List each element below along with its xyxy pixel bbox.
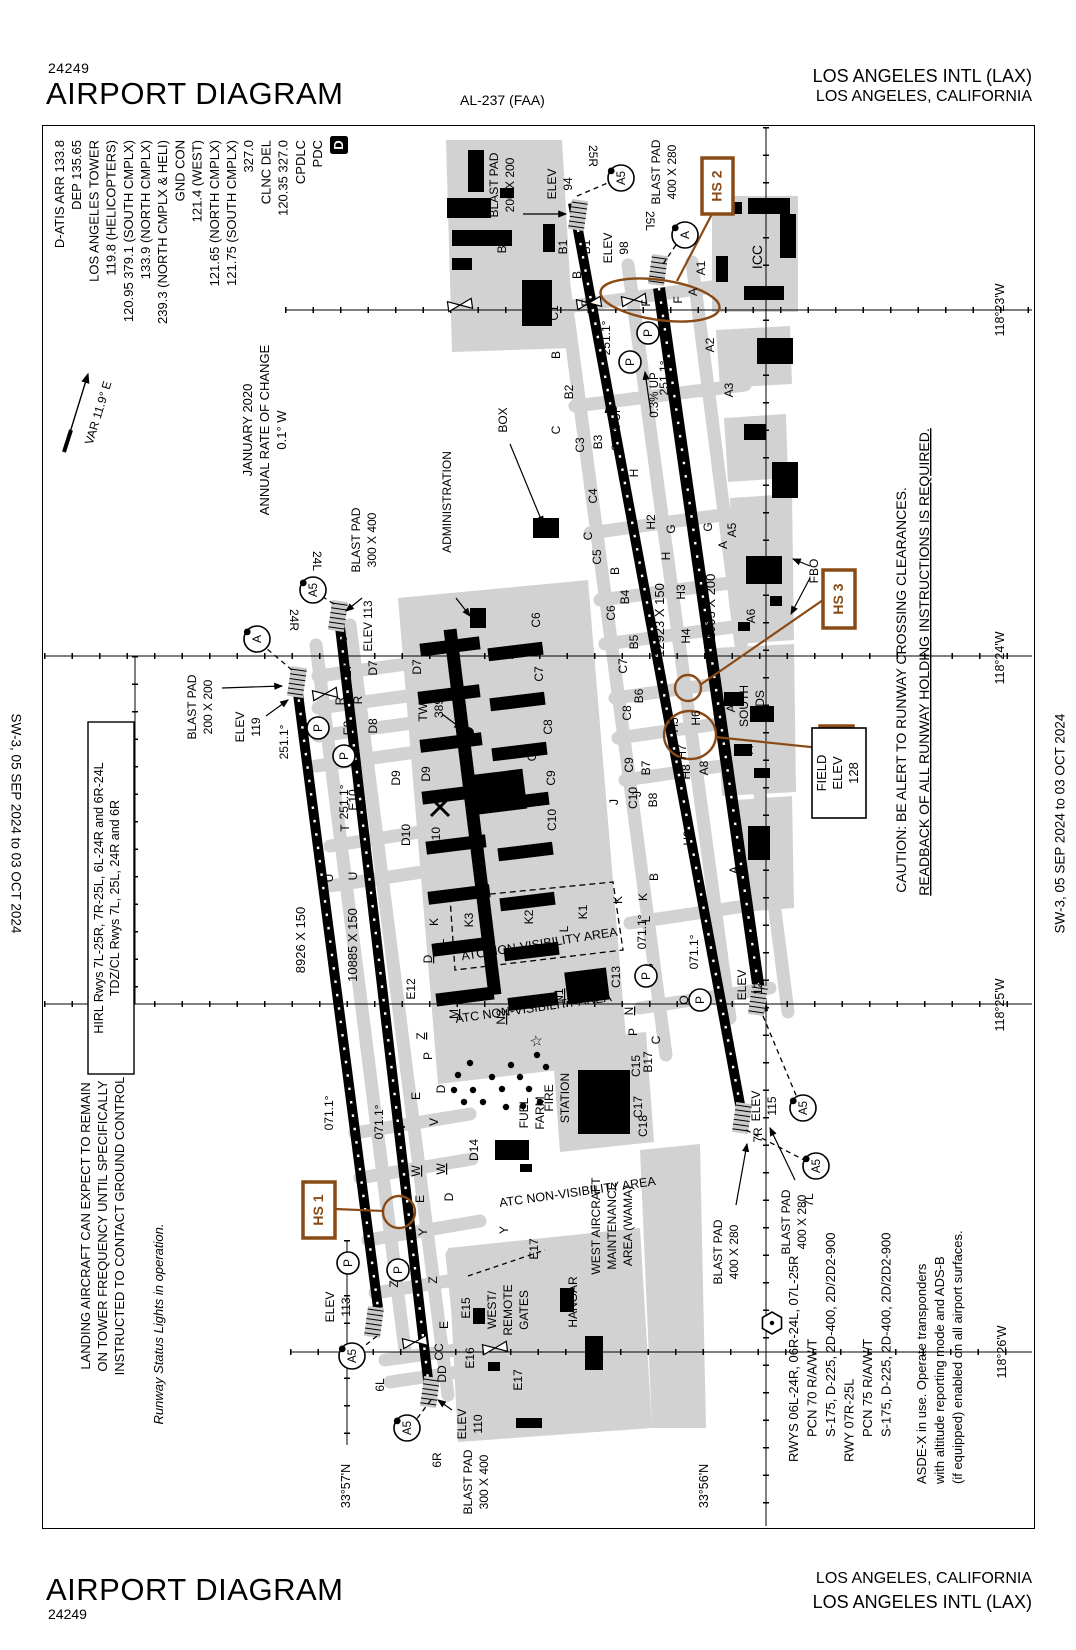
taxiway-label: A: [742, 746, 756, 754]
taxiway-label: B1: [556, 239, 570, 254]
taxiway-label: D7: [410, 659, 424, 675]
page-title-footer: AIRPORT DIAGRAM: [46, 1572, 343, 1608]
comm-line: D-ATIS ARR 133.8: [52, 140, 67, 248]
leader-arrow: [736, 1144, 747, 1205]
caution-note: CAUTION: BE ALERT TO RUNWAY CROSSING CLE…: [893, 487, 909, 893]
taxiway-label: K2: [522, 909, 536, 924]
taxiway-label: D9: [389, 770, 403, 786]
taxiway-label: E17: [511, 1369, 525, 1391]
taxiway-label: BLAST PAD400 X 280: [649, 139, 679, 204]
taxiway-label: N1: [552, 988, 566, 1004]
taxiway-label: HANGAR: [566, 1276, 580, 1328]
circled-letter: P: [641, 329, 655, 337]
taxiway-label: 6L: [373, 1378, 387, 1392]
dashed-leader: [362, 1336, 377, 1348]
building: [495, 1140, 529, 1160]
taxiway-label: A8: [697, 760, 711, 775]
taxiway-label: H6: [689, 710, 703, 726]
taxiway-label: B: [570, 271, 584, 279]
building: [780, 214, 796, 258]
building: [770, 596, 782, 606]
fuel-tank-dot: [467, 1060, 473, 1066]
alsf-dot: [608, 167, 615, 174]
alsf-dot: [672, 224, 679, 231]
taxiway-label: C: [581, 531, 595, 540]
hotspot-box-label: HS 2: [709, 170, 725, 201]
taxiway-label: V: [427, 1118, 441, 1126]
taxiway-label: C17: [631, 1096, 645, 1118]
leader-arrow: [438, 1400, 452, 1410]
taxiway-label: B1: [495, 238, 509, 253]
taxiway-label: D: [442, 1192, 456, 1201]
comm-line: 121.4 (WEST): [190, 140, 205, 222]
circled-letter: P: [337, 752, 351, 760]
leader-arrow: [510, 444, 543, 524]
fuel-tank-dot: [455, 1072, 461, 1078]
taxiway-label: C8: [541, 719, 555, 735]
circled-letter: A5: [347, 1349, 359, 1363]
comm-line: PDC: [310, 140, 325, 167]
taxiway-label: BLAST PAD400 X 280: [711, 1219, 741, 1284]
building: [516, 1418, 542, 1428]
fuel-tank-dot: [499, 1086, 505, 1092]
taxiway-label: F: [639, 299, 653, 306]
comm-line: 121.65 (NORTH CMPLX): [207, 140, 222, 286]
taxiway-label: U: [346, 872, 360, 881]
comm-line: 120.95 379.1 (SOUTH CMPLX): [121, 140, 136, 322]
taxiway-label: FBO: [807, 559, 821, 584]
taxiway-label: 0.3% UP: [649, 372, 661, 418]
taxiway-label: B6: [632, 688, 646, 703]
building: [748, 198, 790, 214]
building: [470, 608, 486, 628]
taxiway-label: K: [427, 918, 441, 926]
taxiway-label: C9: [544, 770, 558, 786]
leader-arrow: [770, 1128, 795, 1180]
building: [452, 258, 472, 270]
taxiway-label: C1: [547, 305, 561, 321]
taxiway-label: C1: [522, 304, 536, 320]
airport-diagram-canvas: 118°23'W118°24'W118°25'W118°26'W33°56'N3…: [0, 0, 1076, 1650]
taxiway-label: K3: [462, 912, 476, 927]
taxiway-label: P: [626, 1028, 640, 1036]
building: [754, 768, 770, 778]
taxiway-label: B2: [562, 384, 576, 399]
building: [716, 256, 728, 282]
comm-line: LOS ANGELES TOWER: [86, 140, 101, 282]
taxiway-label: 071.1°: [372, 1104, 386, 1139]
fuel-tank-dot: [526, 1086, 532, 1092]
taxiway-label: 8926 X 150: [293, 907, 308, 974]
taxiway-label: C8: [620, 705, 634, 721]
circled-letter: A5: [308, 583, 320, 597]
building: [447, 198, 491, 218]
taxiway-label: 7R: [751, 1127, 765, 1143]
asdex-note: with altitude reporting mode and ADS-B: [932, 1256, 947, 1485]
taxiway-label: E: [437, 1321, 451, 1329]
taxiway-label: E10: [346, 789, 360, 811]
dashed-leader: [577, 182, 610, 196]
building: [468, 769, 527, 815]
fuel-tank-dot: [543, 1064, 549, 1070]
taxiway-label: K1: [576, 904, 590, 919]
taxiway-label: A1: [694, 260, 708, 275]
rwsl-note: Runway Status Lights in operation.: [151, 1224, 166, 1425]
taxiway-label: 25L: [643, 211, 657, 231]
taxiway-label: 071.1°: [322, 1095, 336, 1130]
alsf-dot: [244, 628, 251, 635]
building: [468, 150, 484, 192]
circled-letter: A5: [402, 1421, 414, 1435]
comm-line: CPDLC: [293, 140, 308, 184]
taxiway-label: G: [701, 522, 715, 531]
readback-note: READBACK OF ALL RUNWAY HOLDING INSTRUCTI…: [916, 428, 932, 896]
taxiway-label: D7: [366, 660, 380, 676]
comm-line: 239.3 (NORTH CMPLX & HELI): [155, 140, 170, 324]
taxiway-label: Y: [416, 1228, 430, 1236]
comm-line: CLNC DEL: [258, 140, 273, 204]
comm-line: 327.0: [241, 140, 256, 173]
taxiway-label: ELEV 113: [363, 601, 375, 652]
taxiway-label: C7: [616, 658, 630, 674]
taxiway-label: W: [434, 1163, 448, 1175]
taxiway-label: B8: [646, 792, 660, 807]
taxiway-label: C13: [609, 966, 623, 988]
circled-letter: A: [250, 635, 264, 643]
circled-letter: A5: [811, 1159, 823, 1173]
taxiway-label: B17: [641, 1051, 655, 1073]
comm-line: 120.35 327.0: [276, 140, 291, 216]
taxiway-label: D: [421, 954, 435, 963]
taxiway-label: B4: [618, 589, 632, 604]
asdex-note: (if equipped) enabled on all airport sur…: [950, 1230, 965, 1484]
annual-change-note: JANUARY 2020ANNUAL RATE OF CHANGE0.1° W: [240, 344, 289, 515]
taxiway-label: 24R: [287, 609, 301, 631]
taxiway-label: ELEV119: [233, 712, 263, 743]
building: [585, 1336, 603, 1370]
taxiway-label: B: [608, 567, 622, 575]
taxiway-label: A2: [703, 337, 717, 352]
building: [533, 518, 559, 538]
taxiway-label: C: [649, 1035, 663, 1044]
taxiway-label: Z: [426, 1276, 440, 1283]
taxiway-label: BLAST PAD300 X 400: [349, 507, 379, 572]
taxiway-label: 10885 X 150: [345, 908, 360, 982]
taxiway-label: N: [622, 1007, 636, 1016]
taxiway-label: H: [659, 552, 673, 561]
taxiway-label: ADMINISTRATION: [440, 451, 454, 553]
fuel-tank-dot: [534, 1052, 540, 1058]
taxiway-label: B7: [639, 760, 653, 775]
taxiway-label: D14: [467, 1139, 481, 1161]
alsf-dot: [300, 579, 307, 586]
taxiway-label: CC: [432, 1343, 446, 1361]
fuel-tank-dot: [480, 1099, 486, 1105]
blast-pad: [287, 666, 307, 698]
blast-pad: [364, 1306, 384, 1338]
dashed-leader: [663, 242, 678, 264]
taxiway-label: K: [636, 893, 650, 901]
building: [744, 286, 784, 300]
building: [488, 1362, 500, 1371]
building: [744, 424, 766, 440]
taxiway-label: R: [351, 695, 365, 704]
taxiway-label: Z: [414, 1032, 428, 1039]
circled-letter: P: [311, 724, 325, 732]
pcn-note: PCN 75 R/A/W/T: [860, 1339, 875, 1437]
taxiway-label: C5: [590, 549, 604, 565]
tower-dot: [462, 727, 474, 739]
taxiway-label: V: [394, 1123, 408, 1131]
taxiway-label: 0.3% UP: [611, 405, 623, 451]
taxiway-label: T: [338, 824, 352, 832]
taxiway-label: H5: [667, 717, 681, 733]
taxiway-label: 25R: [586, 145, 600, 167]
alsf-dot: [394, 1417, 401, 1424]
airport-city-footer: LOS ANGELES, CALIFORNIA: [816, 1570, 1032, 1588]
taxiway-label: M: [447, 1009, 461, 1019]
taxiway-label: H4: [679, 628, 693, 644]
taxiway-label: A: [686, 288, 700, 296]
taxiway-label: K: [611, 896, 625, 904]
taxiway-label: E12: [404, 978, 418, 1000]
taxiway-label: G: [664, 524, 678, 533]
comm-line: 119.8 (HELICOPTERS): [104, 140, 119, 276]
magnetic-variation-label: VAR 11.9° E: [82, 379, 115, 446]
taxiway-label: A5: [725, 522, 739, 537]
taxiway-label: H7: [675, 744, 689, 760]
taxiway-label: BLAST PAD300 X 400: [461, 1449, 491, 1514]
graticule-label: 118°25'W: [993, 978, 1007, 1031]
taxiway-label: DD: [435, 1365, 449, 1383]
taxiway-label: E8: [341, 720, 355, 735]
taxiway-label: E: [409, 1092, 423, 1100]
graticule-label: 118°26'W: [995, 1325, 1009, 1378]
taxiway-label: A6: [744, 608, 758, 623]
taxiway-label: 24L: [310, 551, 324, 571]
pcn-note: S-175, D-225, 2D-400, 2D/2D2-900: [879, 1232, 894, 1437]
taxiway-label: BLAST PAD200 X 200: [185, 674, 215, 739]
taxiway-label: C6: [529, 612, 543, 628]
graticule-label: 118°23'W: [993, 283, 1007, 336]
taxiway-label: L: [433, 938, 447, 945]
comm-line: DEP 135.65: [69, 140, 84, 210]
building: [520, 1164, 532, 1172]
taxiway-label: L: [639, 915, 653, 922]
pcn-note: RWYS 06L-24R, 06R-24L, 07L-25R: [786, 1256, 801, 1462]
taxiway-label: C4: [586, 488, 600, 504]
taxiway-label: B3: [591, 434, 605, 449]
fuel-tank-dot: [489, 1074, 495, 1080]
taxiway-label: H3: [674, 584, 688, 600]
taxiway-label: C: [549, 425, 563, 434]
taxiway-label: B1: [579, 239, 593, 254]
taxiway-label: F: [579, 299, 593, 306]
comm-line: GND CON: [172, 140, 187, 201]
taxiway-label: E17: [527, 1238, 541, 1260]
vor-dot: [770, 1321, 774, 1325]
taxiway-label: C7: [532, 666, 546, 682]
airport-name-footer: LOS ANGELES INTL (LAX): [813, 1592, 1032, 1613]
circled-letter: P: [623, 358, 637, 366]
graticule-label: 33°56'N: [697, 1464, 711, 1508]
dashed-leader: [266, 648, 292, 670]
circled-letter: P: [693, 996, 707, 1004]
leader-arrow: [346, 598, 362, 611]
pcn-note: PCN 70 R/A/W/T: [805, 1339, 820, 1437]
fuel-tank-dot: [517, 1074, 523, 1080]
taxiway-label: R: [333, 696, 347, 705]
taxiway-label: A: [727, 866, 741, 874]
dashed-leader: [763, 1016, 798, 1100]
taxiway-label: D9: [419, 766, 433, 782]
leader-arrow: [266, 700, 288, 716]
taxiway-label: ELEV115: [749, 1091, 779, 1122]
taxiway-label: B: [647, 873, 661, 881]
fuel-tank-dot: [451, 1087, 457, 1093]
taxiway-label: D10: [399, 824, 413, 846]
fuel-tank-dot: [461, 1099, 467, 1105]
taxiway-label: H: [627, 469, 641, 478]
taxiway-label: P: [421, 1052, 435, 1060]
taxiway-label: C10: [545, 809, 559, 831]
taxiway-label: 7L: [802, 1193, 816, 1207]
hotspot-box-label: HS 3: [830, 583, 846, 614]
fuel-tank-dot: [508, 1062, 514, 1068]
taxiway-label: 11095 X 200: [703, 574, 718, 647]
taxiway-label: C18: [636, 1115, 650, 1137]
comm-line: 133.9 (NORTH CMPLX): [138, 140, 153, 279]
taxiway-label: A: [716, 541, 730, 549]
circled-letter: A: [678, 231, 692, 239]
building: [473, 1308, 485, 1324]
taxiway-label: D8: [366, 718, 380, 734]
taxiway-label: E16: [463, 1347, 477, 1369]
building: [746, 556, 782, 584]
taxiway-label: A7: [724, 697, 738, 712]
taxiway-label: D: [434, 1084, 448, 1093]
taxiway-label: 071.1°: [687, 934, 701, 969]
taxiway-label: E: [413, 1195, 427, 1203]
taxiway-label: 251.1°: [599, 320, 613, 355]
taxiway-label: H2: [644, 514, 658, 530]
taxiway-label: C6: [604, 605, 618, 621]
landing-note: LANDING AIRCRAFT CAN EXPECT TO REMAINON …: [78, 1077, 127, 1376]
datis-symbol: D: [331, 140, 346, 149]
taxiway-label: 251.1°: [277, 724, 291, 759]
taxiway-label: BOX: [496, 407, 510, 432]
circled-letter: A5: [798, 1101, 810, 1115]
taxiway-label: J: [630, 791, 644, 797]
taxiway-label: D10: [429, 827, 443, 849]
taxiway-label: H8: [679, 764, 693, 780]
taxiway-label: ICC: [749, 245, 765, 269]
taxiway-label: L: [557, 925, 571, 932]
alsf-dot: [339, 1345, 346, 1352]
taxiway-label: N2: [494, 1009, 508, 1025]
taxiway-label: 12923 X 150: [652, 583, 667, 657]
taxiway-label: W: [409, 1165, 423, 1177]
taxiway-label: F: [671, 296, 685, 303]
graticule-label: 33°57'N: [339, 1464, 353, 1508]
alsf-dot: [803, 1155, 810, 1162]
asdex-note: ASDE-X in use. Operate transponders: [914, 1263, 929, 1484]
taxiway-label: WEST/REMOTEGATES: [485, 1284, 531, 1335]
circled-letter: P: [341, 1259, 355, 1267]
taxiway-label: J: [607, 799, 621, 805]
pcn-note: RWY 07R-25L: [842, 1379, 857, 1462]
circled-letter: P: [391, 1266, 405, 1274]
hotspot-leader: [335, 1209, 384, 1211]
building: [772, 462, 798, 498]
taxiway-label: C3: [573, 437, 587, 453]
building: [748, 826, 770, 860]
alsf-dot: [790, 1097, 797, 1104]
taxiway-label: 6R: [430, 1452, 444, 1468]
chart-number-footer: 24249: [48, 1606, 87, 1622]
circled-letter: A5: [616, 171, 628, 185]
star-icon: ☆: [529, 1032, 545, 1051]
fuel-tank-dot: [470, 1087, 476, 1093]
comm-line: 121.75 (SOUTH CMPLX): [224, 140, 239, 286]
leader-arrow: [222, 686, 282, 688]
building: [757, 338, 793, 364]
taxiway-label: E15: [459, 1297, 473, 1319]
north-arrow-tail: [64, 430, 71, 452]
building: [578, 1070, 630, 1134]
taxiway-label: H9: [681, 830, 695, 846]
taxiway-label: B5: [627, 634, 641, 649]
taxiway-label: C: [525, 752, 539, 761]
taxiway-label: C9: [622, 757, 636, 773]
taxiway-label: A3: [722, 382, 736, 397]
hotspot-box-label: HS 1: [310, 1194, 326, 1225]
taxiway-label: E6: [336, 635, 350, 650]
taxiway-label: U: [322, 874, 336, 883]
circled-letter: P: [639, 972, 653, 980]
pcn-note: S-175, D-225, 2D-400, 2D/2D2-900: [823, 1232, 838, 1437]
building: [543, 224, 555, 252]
taxiway-label: E7: [340, 663, 354, 678]
taxiway-label: B: [549, 351, 563, 359]
graticule-label: 118°24'W: [993, 631, 1007, 684]
taxiway-label: Y: [497, 1226, 511, 1234]
fuel-tank-dot: [503, 1104, 509, 1110]
